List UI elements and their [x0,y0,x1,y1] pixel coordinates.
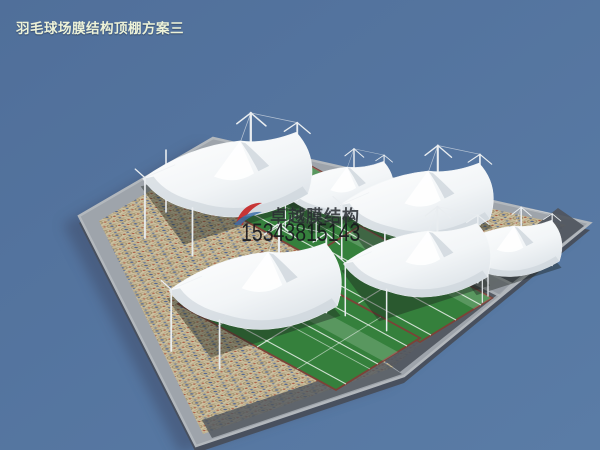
scene-3d-render [0,0,600,450]
scheme-title: 羽毛球场膜结构顶棚方案三 [16,17,184,37]
render-viewport: 羽毛球场膜结构顶棚方案三 卓越膜结构 15343815143 [0,0,600,450]
